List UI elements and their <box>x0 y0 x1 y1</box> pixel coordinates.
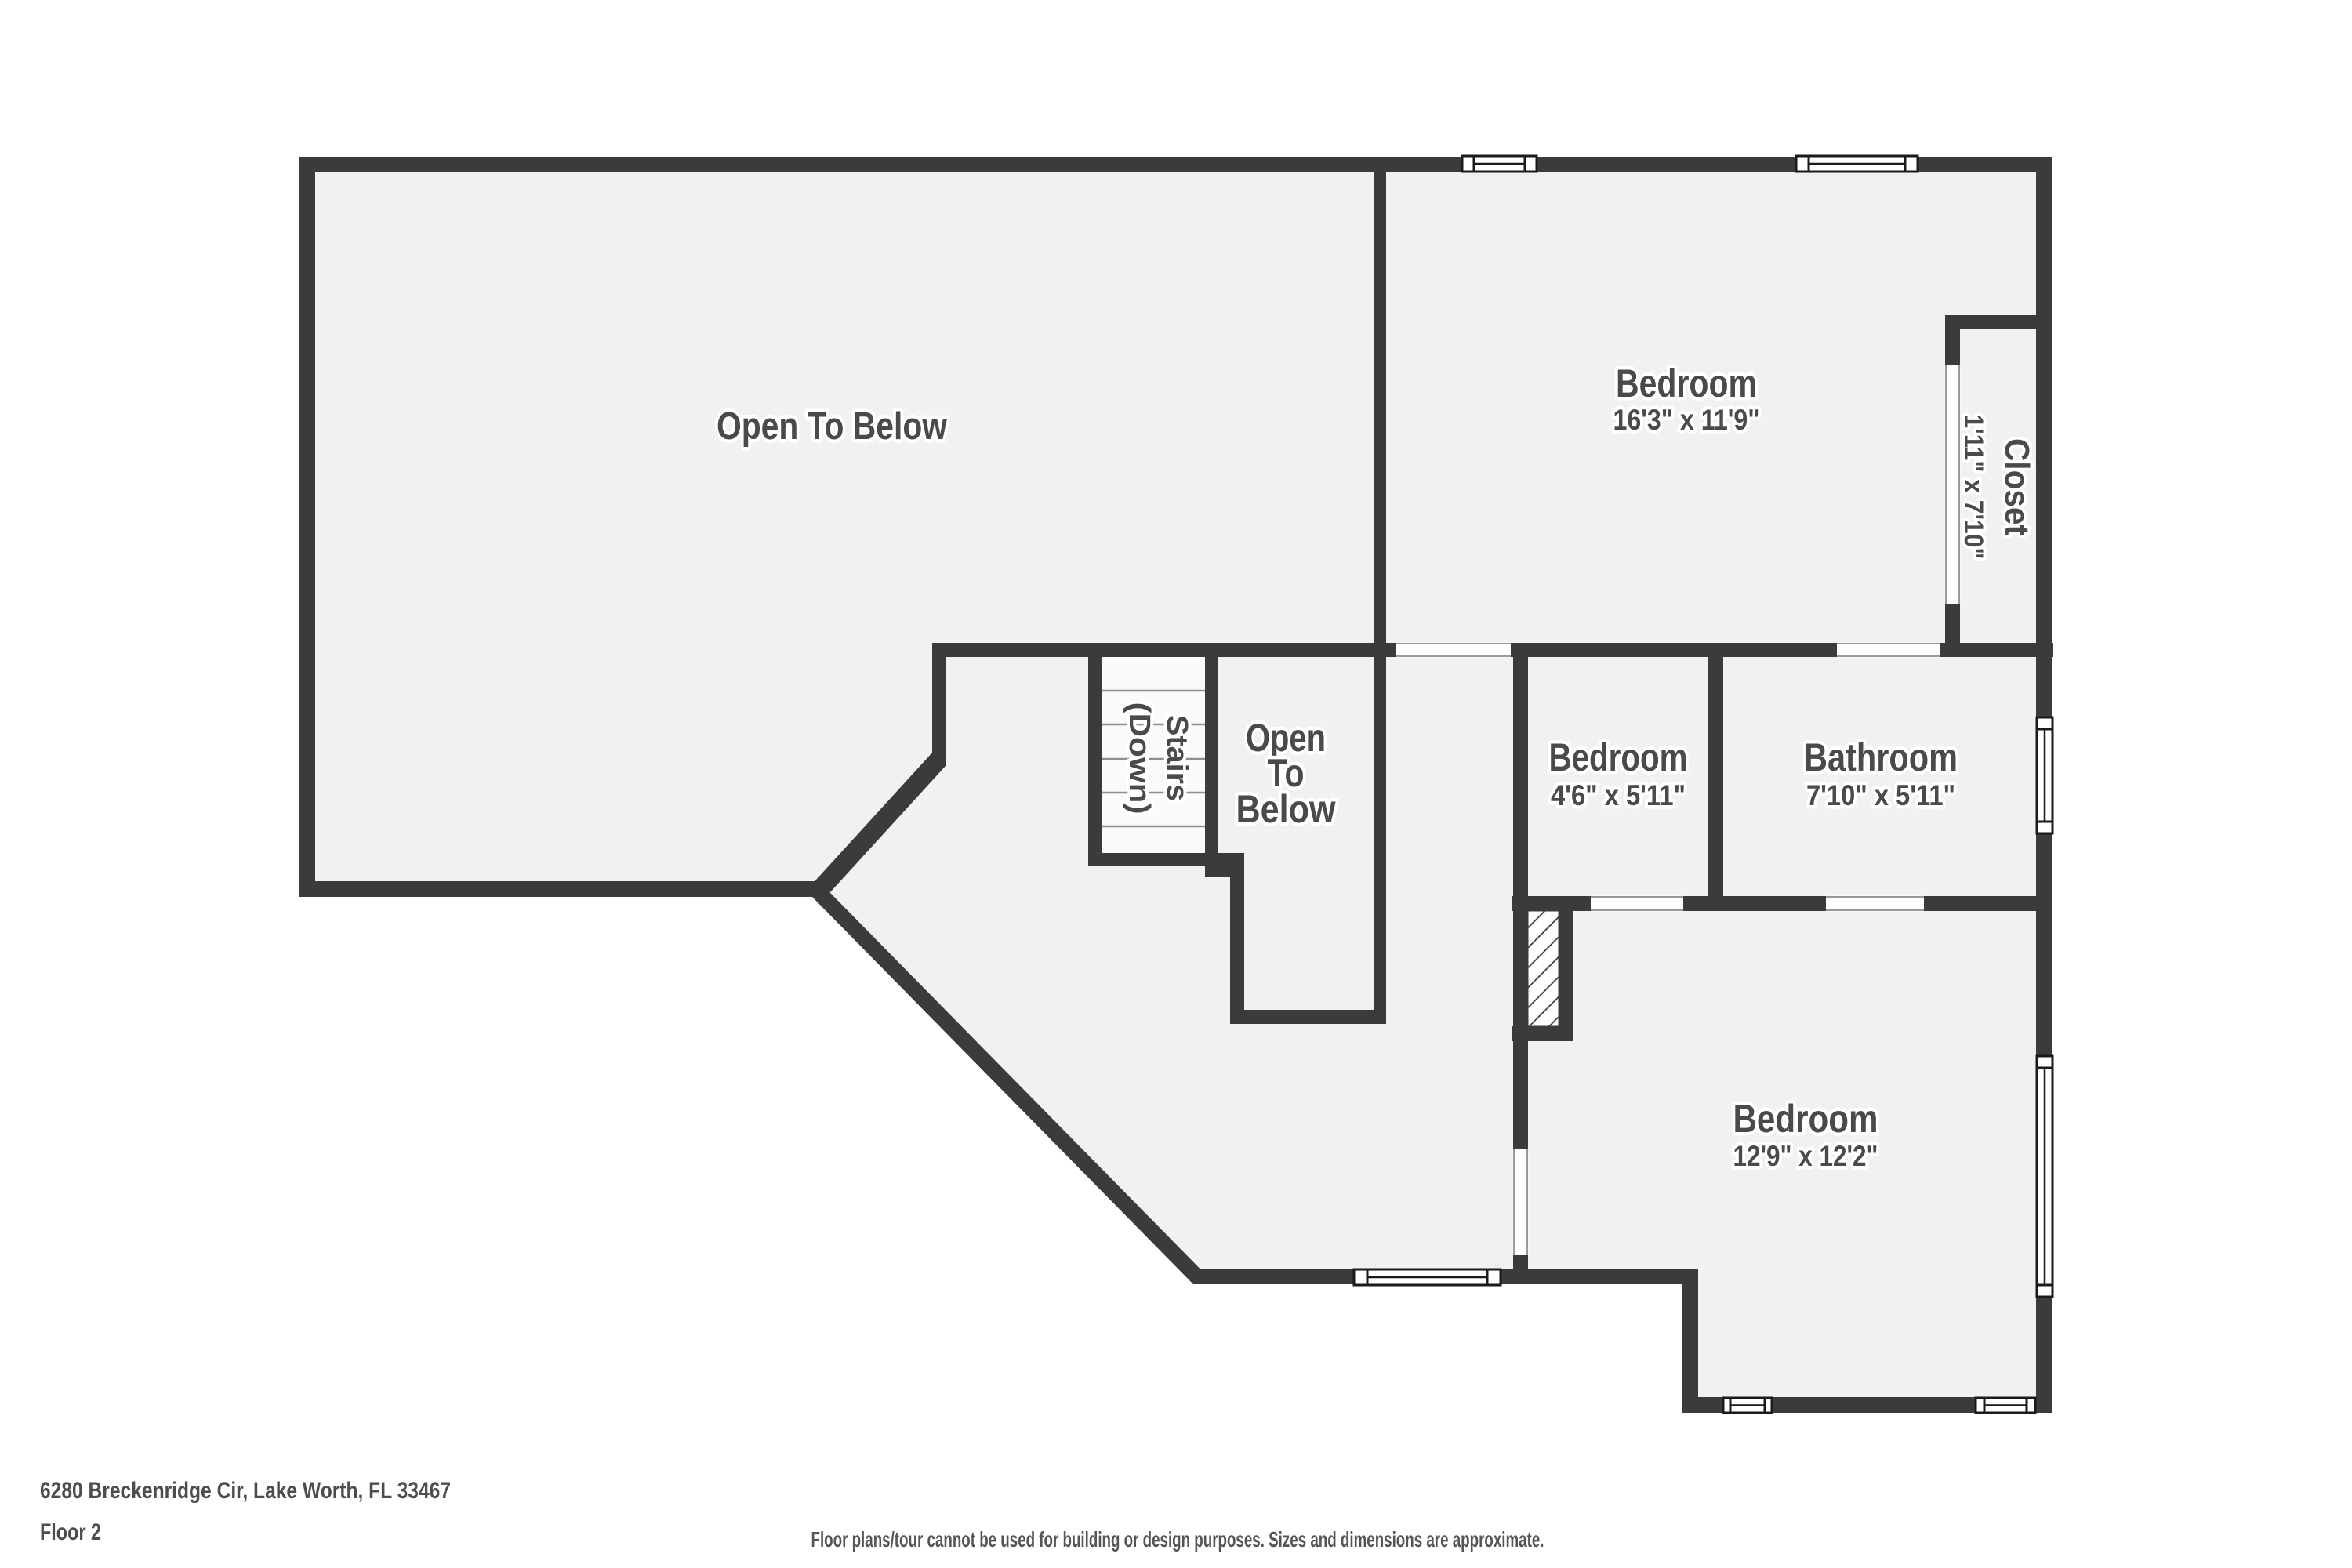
svg-text:Bathroom: Bathroom <box>1804 735 1958 779</box>
svg-text:Stairs: Stairs <box>1160 715 1193 801</box>
svg-text:16'3" x 11'9": 16'3" x 11'9" <box>1613 404 1760 436</box>
svg-text:6280 Breckenridge Cir, Lake Wo: 6280 Breckenridge Cir, Lake Worth, FL 33… <box>40 1478 451 1504</box>
svg-text:(Down): (Down) <box>1123 702 1156 815</box>
svg-text:12'9" x 12'2": 12'9" x 12'2" <box>1733 1140 1878 1172</box>
svg-text:Bedroom: Bedroom <box>1616 361 1757 405</box>
svg-text:Closet: Closet <box>1998 438 2036 535</box>
svg-text:Open To Below: Open To Below <box>717 405 948 448</box>
svg-text:7'10" x 5'11": 7'10" x 5'11" <box>1806 779 1955 811</box>
svg-text:Floor 2: Floor 2 <box>40 1519 101 1545</box>
svg-text:4'6" x 5'11": 4'6" x 5'11" <box>1551 779 1686 811</box>
svg-text:Bedroom: Bedroom <box>1733 1097 1878 1141</box>
svg-text:1'11" x 7'10": 1'11" x 7'10" <box>1958 415 1988 560</box>
svg-text:Below: Below <box>1236 787 1336 831</box>
svg-text:Floor plans/tour cannot be use: Floor plans/tour cannot be used for buil… <box>811 1527 1544 1552</box>
svg-text:Bedroom: Bedroom <box>1549 735 1688 779</box>
